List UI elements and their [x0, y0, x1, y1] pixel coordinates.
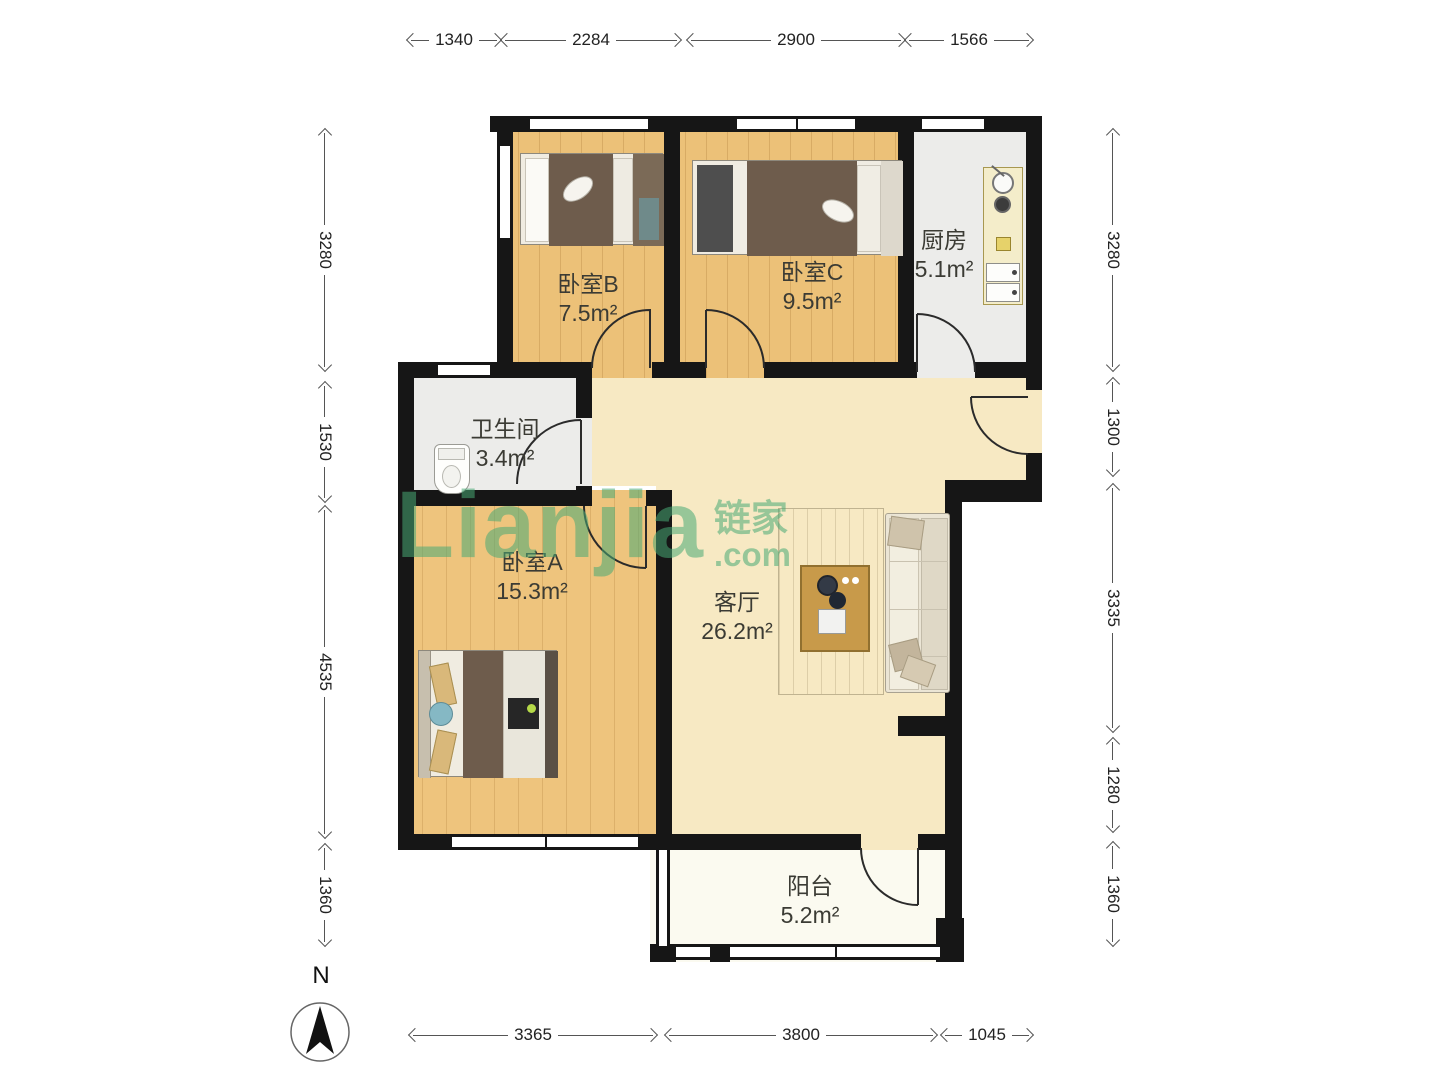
dimension-value: 1300	[1103, 402, 1123, 452]
room-name: 卫生间	[425, 415, 585, 444]
dimension-value: 3280	[1103, 225, 1123, 275]
dimension-value: 1045	[962, 1025, 1012, 1045]
dimension-value: 2284	[566, 30, 616, 50]
doors-compass-overlay	[0, 0, 1440, 1080]
room-name: 厨房	[882, 226, 1006, 255]
dimension-value: 2900	[771, 30, 821, 50]
dimension-right-2: 1300	[1103, 379, 1123, 475]
room-area: 7.5m²	[508, 299, 668, 328]
room-label-balcony: 阳台 5.2m²	[730, 872, 890, 930]
room-area: 26.2m²	[657, 617, 817, 646]
compass-north-label: N	[306, 962, 336, 990]
dimension-left-4: 1360	[315, 845, 335, 945]
room-label-bedroom-a: 卧室A 15.3m²	[452, 548, 612, 606]
dimension-value: 3800	[776, 1025, 826, 1045]
dimension-value: 1566	[944, 30, 994, 50]
dimension-value: 4535	[315, 647, 335, 697]
room-label-bedroom-c: 卧室C 9.5m²	[732, 258, 892, 316]
dimension-value: 1530	[315, 417, 335, 467]
room-name: 阳台	[730, 872, 890, 901]
dimension-right-5: 1360	[1103, 843, 1123, 945]
dimension-value: 3335	[1103, 583, 1123, 633]
dimension-bottom-1: 3365	[410, 1025, 656, 1045]
dimension-left-1: 3280	[315, 130, 335, 370]
dimension-top-3: 2900	[688, 30, 904, 50]
dimension-right-1: 3280	[1103, 130, 1123, 370]
room-name: 卧室A	[452, 548, 612, 577]
dimension-value: 3365	[508, 1025, 558, 1045]
dimension-value: 3280	[315, 225, 335, 275]
door-arc-kitchen	[917, 314, 975, 372]
room-label-kitchen: 厨房 5.1m²	[882, 226, 1006, 284]
dimension-value: 1360	[1103, 869, 1123, 919]
dimension-bottom-3: 1045	[942, 1025, 1032, 1045]
dimension-value: 1340	[429, 30, 479, 50]
room-area: 3.4m²	[425, 444, 585, 473]
room-area: 15.3m²	[452, 577, 612, 606]
dimension-left-2: 1530	[315, 383, 335, 501]
dimension-right-4: 1280	[1103, 739, 1123, 831]
room-area: 9.5m²	[732, 287, 892, 316]
room-name: 卧室C	[732, 258, 892, 287]
door-arc-bedroom-c	[706, 310, 764, 368]
room-name: 客厅	[657, 588, 817, 617]
dimension-top-2: 2284	[502, 30, 680, 50]
dimension-value: 1360	[315, 870, 335, 920]
room-label-living: 客厅 26.2m²	[657, 588, 817, 646]
room-name: 卧室B	[508, 270, 668, 299]
room-label-bathroom: 卫生间 3.4m²	[425, 415, 585, 473]
room-area: 5.2m²	[730, 901, 890, 930]
dimension-value: 1280	[1103, 760, 1123, 810]
dimension-top-4: 1566	[906, 30, 1032, 50]
dimension-right-3: 3335	[1103, 485, 1123, 731]
room-label-bedroom-b: 卧室B 7.5m²	[508, 270, 668, 328]
room-area: 5.1m²	[882, 255, 1006, 284]
floor-plan-page: 卧室B 7.5m² 卧室C 9.5m² 厨房 5.1m² 卫生间 3.4m² 卧…	[0, 0, 1440, 1080]
dimension-bottom-2: 3800	[666, 1025, 936, 1045]
dimension-left-3: 4535	[315, 507, 335, 837]
compass-needle	[306, 1006, 334, 1054]
dimension-top-1: 1340	[408, 30, 500, 50]
door-arc-entrance	[971, 397, 1028, 454]
